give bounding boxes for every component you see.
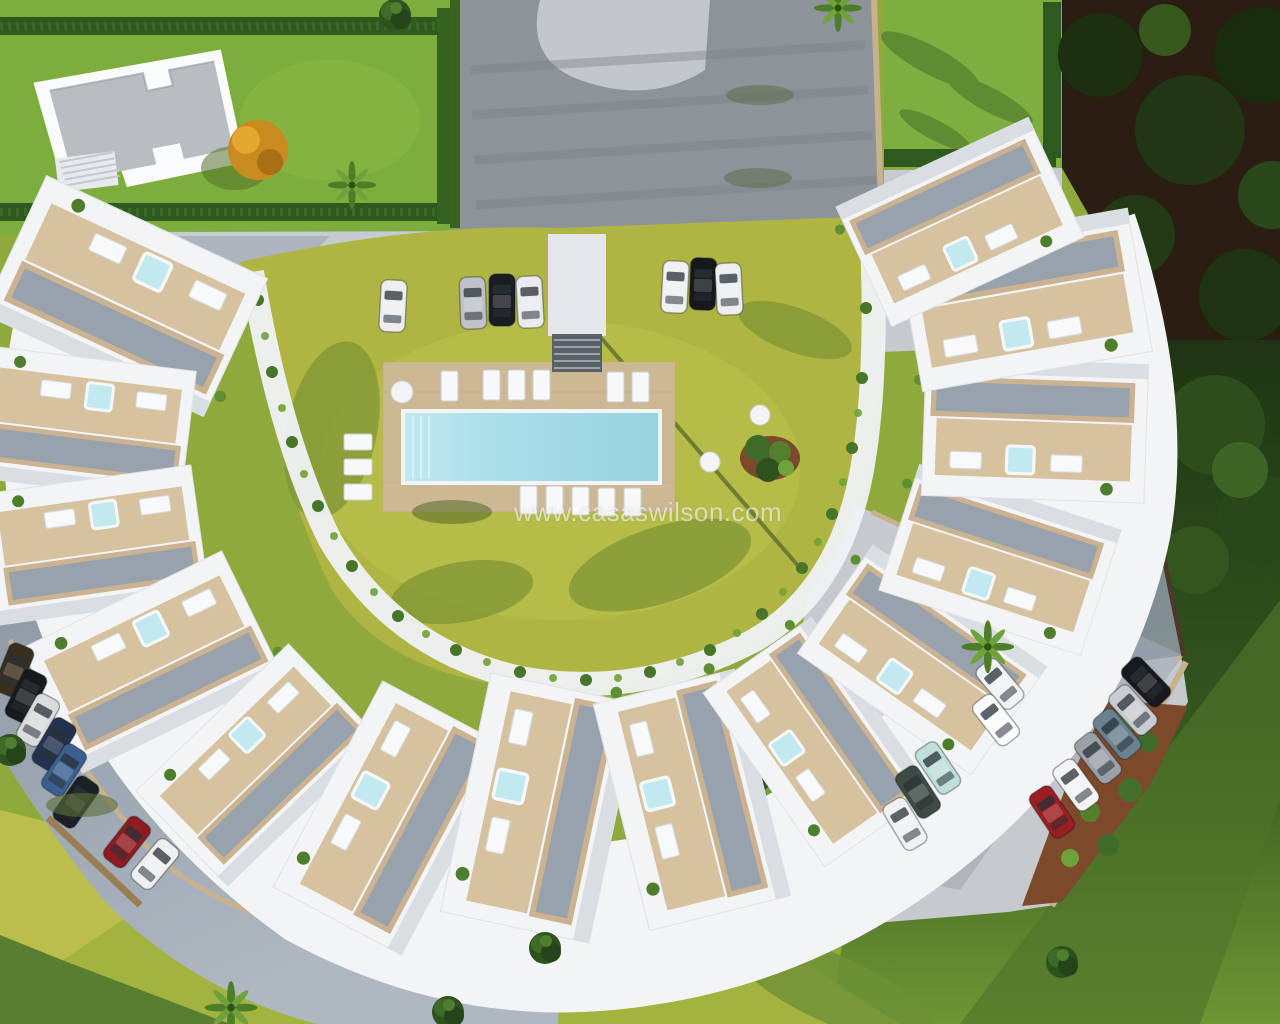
car xyxy=(661,260,690,313)
site-plan-svg xyxy=(0,0,1280,1024)
aerial-render: www.casaswilson.com xyxy=(0,0,1280,1024)
tree xyxy=(379,0,411,31)
car xyxy=(689,258,717,311)
car xyxy=(715,262,744,315)
car xyxy=(489,274,515,326)
car xyxy=(516,275,545,328)
car xyxy=(379,279,408,332)
car xyxy=(459,277,487,330)
entry-walkway xyxy=(548,234,606,336)
upper-parking-lot xyxy=(452,0,882,230)
